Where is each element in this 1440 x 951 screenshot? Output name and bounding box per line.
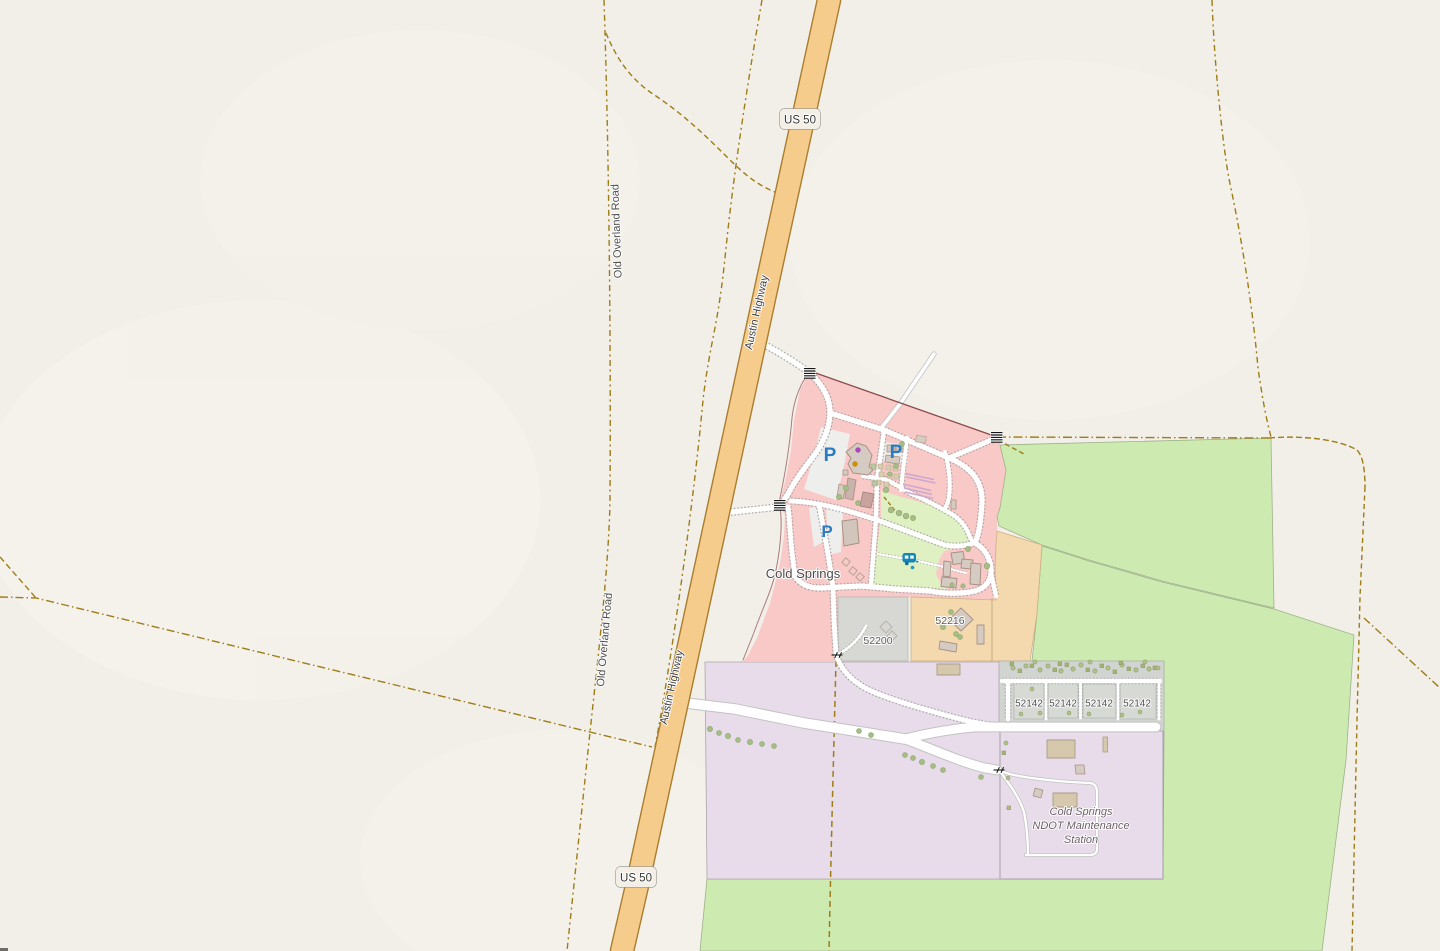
svg-text:P: P xyxy=(890,442,903,463)
svg-text:NDOT Maintenance: NDOT Maintenance xyxy=(1032,820,1129,832)
svg-text:P: P xyxy=(821,522,832,541)
svg-text:52142: 52142 xyxy=(1123,699,1151,710)
svg-text:P: P xyxy=(824,445,837,466)
svg-text:52142: 52142 xyxy=(1015,699,1043,710)
svg-text:Station: Station xyxy=(1064,834,1098,846)
svg-text:52216: 52216 xyxy=(935,615,964,627)
svg-text:US 50: US 50 xyxy=(784,115,816,127)
svg-text:52142: 52142 xyxy=(1085,699,1113,710)
svg-text:Cold Springs: Cold Springs xyxy=(1050,806,1113,818)
svg-text:US 50: US 50 xyxy=(620,873,652,885)
svg-text:52142: 52142 xyxy=(1049,699,1077,710)
svg-text:Cold Springs: Cold Springs xyxy=(766,566,841,581)
svg-text:52200: 52200 xyxy=(863,635,892,647)
